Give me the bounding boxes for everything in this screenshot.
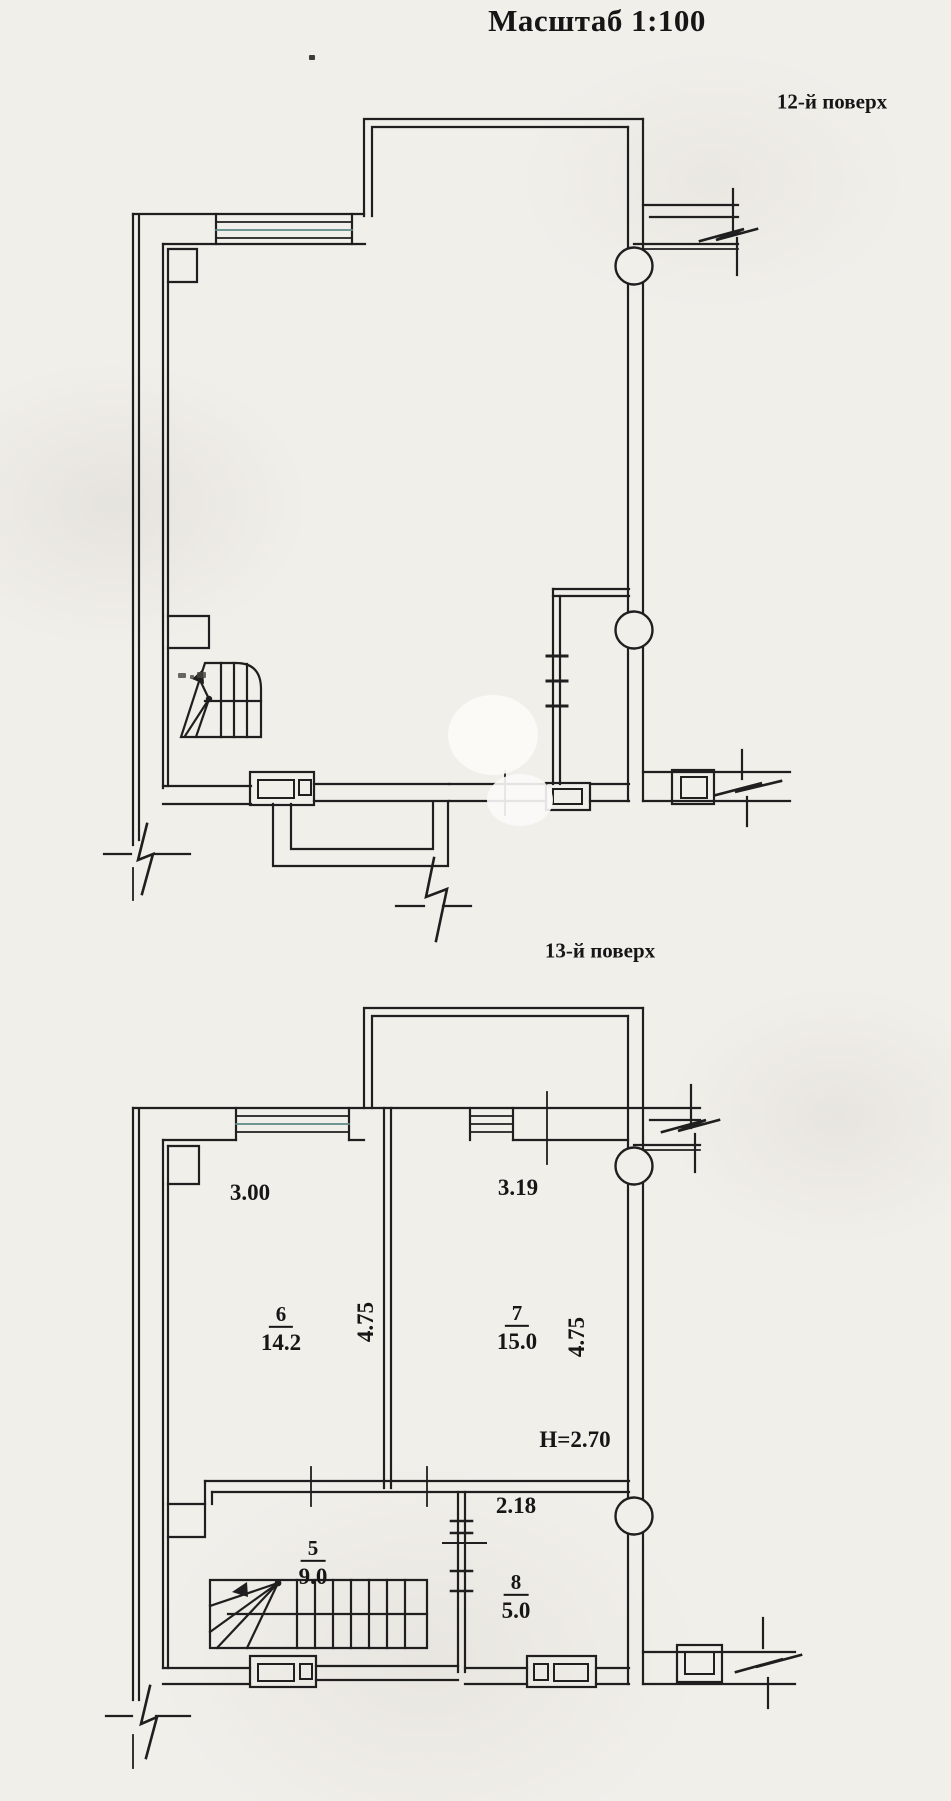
room-divider-wall — [443, 1492, 486, 1672]
room-5-area: 9.0 — [299, 1562, 328, 1589]
ventilation-shaft — [527, 1656, 596, 1687]
staircase-symbol — [210, 1580, 427, 1648]
hall-partition-wall — [205, 1467, 629, 1506]
dim-room6-depth: 4.75 — [353, 1302, 379, 1342]
room-7-number: 7 — [505, 1302, 530, 1327]
scan-smudge — [448, 695, 553, 826]
column-marker — [616, 1148, 653, 1185]
wall-break-symbol — [716, 750, 781, 826]
room-6-label: 6 14.2 — [261, 1303, 301, 1355]
bay-window-walls — [364, 119, 643, 216]
dim-room6-width: 3.00 — [230, 1180, 270, 1206]
room-5-number: 5 — [301, 1537, 326, 1562]
wall-break-symbol — [700, 189, 757, 275]
dim-ceiling-height: H=2.70 — [539, 1427, 610, 1453]
wall-break-symbol — [104, 824, 190, 900]
floor-13-plan — [106, 1008, 801, 1768]
adjacent-wall-stub — [634, 205, 738, 249]
interior-partition-wall — [547, 589, 629, 784]
exterior-wall-right — [628, 1008, 643, 1684]
room-7-label: 7 15.0 — [497, 1302, 537, 1354]
wall-niche — [168, 616, 209, 648]
wall-break-symbol — [396, 858, 471, 941]
ventilation-shaft — [677, 1645, 722, 1682]
ventilation-shaft — [672, 770, 714, 804]
room-7-area: 15.0 — [497, 1327, 537, 1354]
column-marker — [616, 612, 653, 649]
ventilation-shaft — [250, 772, 314, 805]
exterior-wall-top — [133, 1092, 700, 1164]
faded-dimension-marks — [178, 672, 206, 679]
adjacent-wall-stub — [643, 772, 790, 801]
room-5-label: 5 9.0 — [299, 1537, 328, 1589]
plan-drawing — [0, 0, 951, 1801]
wall-niche — [168, 1146, 199, 1184]
lower-bay-walls — [273, 803, 448, 866]
dim-room7-width: 3.19 — [498, 1175, 538, 1201]
adjacent-wall-stub — [643, 1652, 795, 1684]
floor-plan-document: Масштаб 1:100 12-й поверх 13-й поверх 3.… — [0, 0, 951, 1801]
wall-niche — [168, 1504, 205, 1537]
floor-label-13: 13-й поверх — [545, 939, 655, 964]
room-8-label: 8 5.0 — [502, 1571, 531, 1623]
room-divider-wall — [384, 1108, 391, 1488]
ventilation-shaft — [250, 1656, 316, 1687]
exterior-wall-left — [133, 214, 168, 845]
bay-window-walls — [364, 1008, 643, 1108]
room-8-number: 8 — [504, 1571, 529, 1596]
window-glazing — [236, 1116, 513, 1132]
column-marker — [616, 1498, 653, 1535]
column-marker — [616, 248, 653, 285]
exterior-wall-left — [133, 1108, 168, 1700]
exterior-wall-top — [133, 214, 365, 244]
wall-break-symbol — [106, 1686, 190, 1768]
staircase-symbol — [181, 663, 261, 737]
scale-title: Масштаб 1:100 — [488, 3, 706, 39]
scan-speck — [309, 55, 315, 60]
floor-label-12: 12-й поверх — [777, 90, 887, 115]
window-glazing — [216, 222, 352, 238]
floor-12-plan — [104, 119, 790, 941]
dim-room7-depth: 4.75 — [564, 1317, 590, 1357]
dim-room8-width: 2.18 — [496, 1493, 536, 1519]
room-6-number: 6 — [269, 1303, 294, 1328]
exterior-wall-right — [628, 119, 643, 801]
room-8-area: 5.0 — [502, 1596, 531, 1623]
room-6-area: 14.2 — [261, 1328, 301, 1355]
wall-break-symbol — [736, 1618, 801, 1708]
wall-break-symbol — [662, 1085, 719, 1172]
wall-niche — [168, 249, 197, 282]
